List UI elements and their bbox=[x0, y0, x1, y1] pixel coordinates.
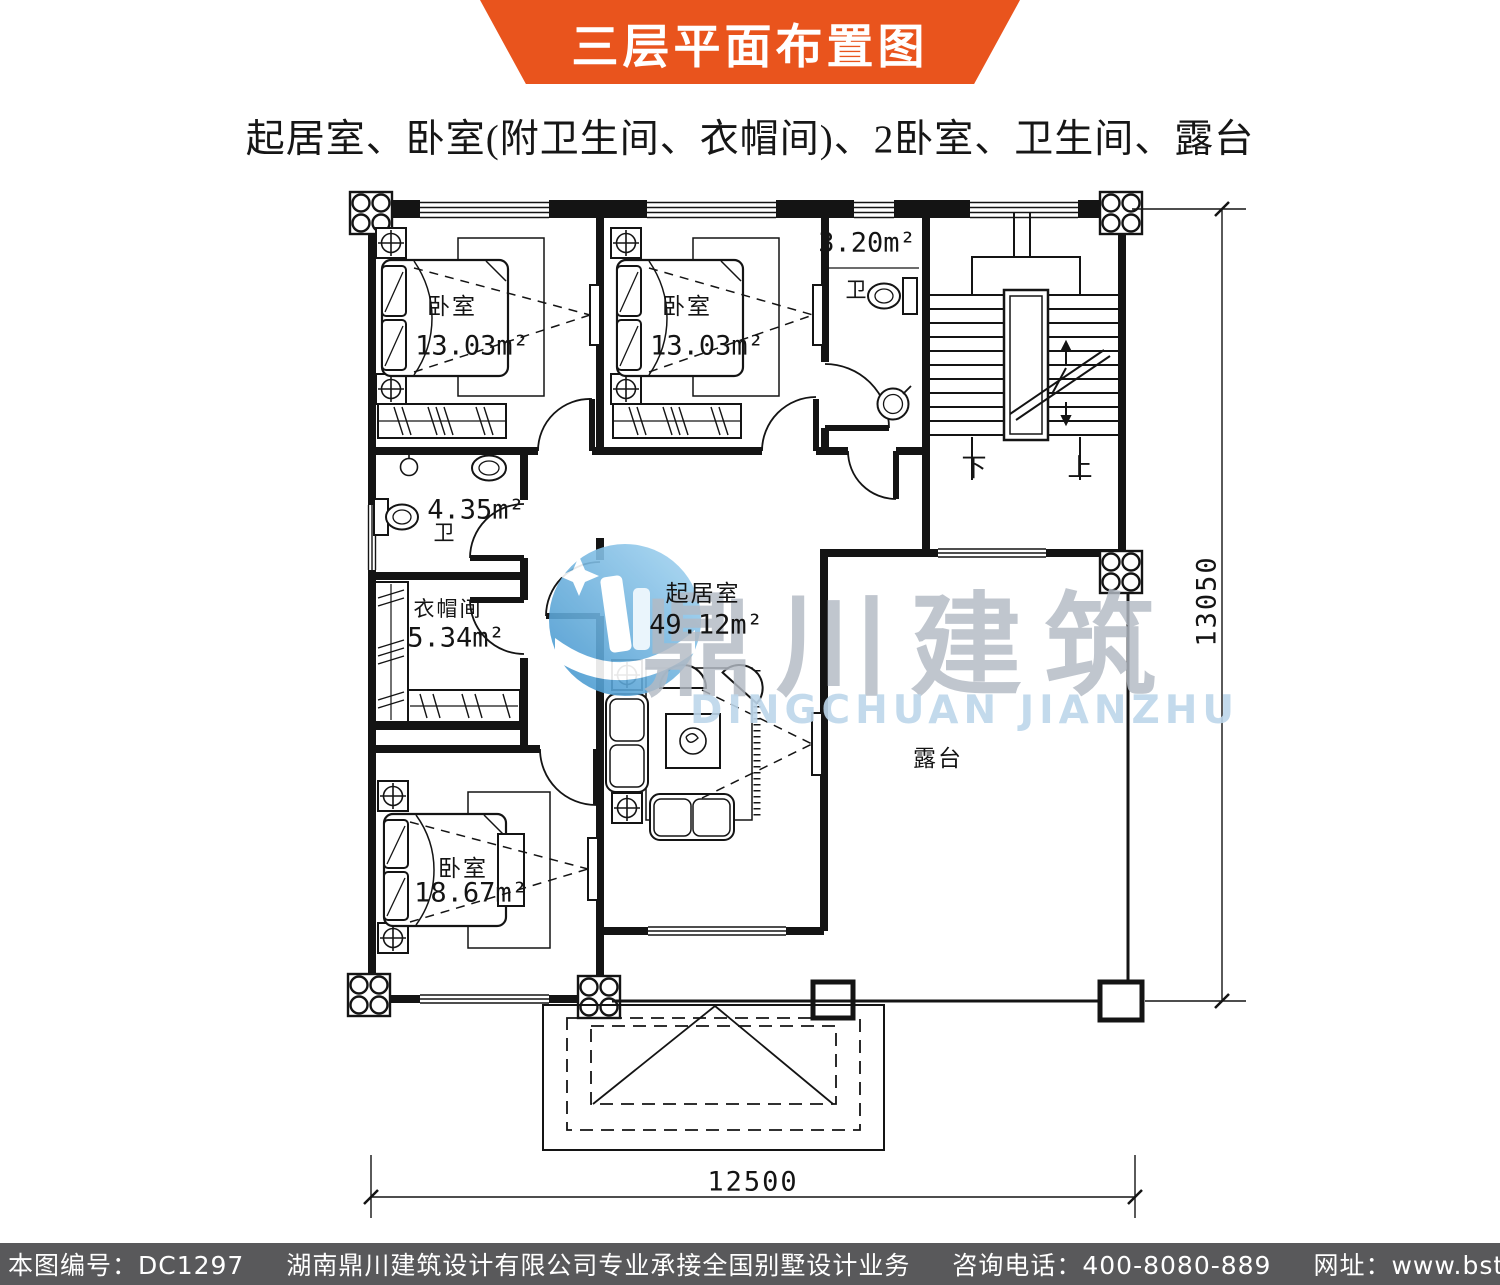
staircase bbox=[930, 213, 1122, 480]
footer-phone: 咨询电话：400-8080-889 bbox=[952, 1246, 1271, 1282]
room-label-bedroom2-name: 卧室 bbox=[662, 287, 712, 321]
room-label-terrace: 露台 bbox=[913, 739, 963, 773]
room-label-bedroom1-name: 卧室 bbox=[427, 287, 477, 321]
room-list-subtitle: 起居室、卧室(附卫生间、衣帽间)、2卧室、卫生间、露台 bbox=[0, 108, 1500, 164]
page-title: 三层平面布置图 bbox=[572, 8, 929, 77]
title-banner: 三层平面布置图 bbox=[480, 0, 1020, 84]
room-label-bedroom3-area: 18.67m² bbox=[414, 878, 528, 909]
footer-company: 湖南鼎川建筑设计有限公司专业承接全国别墅设计业务 bbox=[286, 1246, 910, 1282]
floor-plan-drawing bbox=[0, 0, 1500, 1285]
footer-website: 网址：www.bstzcs.com bbox=[1313, 1246, 1500, 1282]
room-label-bath-left-name: 卫 bbox=[434, 517, 455, 547]
room-label-bedroom1-area: 13.03m² bbox=[415, 331, 529, 362]
bedroom3-furniture bbox=[384, 792, 598, 948]
footer-bar: 本图编号：DC1297 湖南鼎川建筑设计有限公司专业承接全国别墅设计业务 咨询电… bbox=[0, 1243, 1500, 1285]
footer-drawing-number: 本图编号：DC1297 bbox=[8, 1246, 244, 1282]
stairs-up-label: 上 bbox=[1067, 448, 1092, 484]
room-label-bath-top-area: 3.20m² bbox=[818, 228, 916, 259]
stairs-down-label: 下 bbox=[961, 448, 986, 484]
porch-roof bbox=[543, 1005, 884, 1150]
room-label-living-name: 起居室 bbox=[666, 574, 741, 608]
room-label-bedroom2-area: 13.03m² bbox=[650, 331, 764, 362]
room-label-living-area: 49.12m² bbox=[649, 610, 763, 641]
floor-plan-page: 鼎川建筑 DINGCHUAN JIANZHU 三层平面布置图 起居室、卧室(附卫… bbox=[0, 0, 1500, 1285]
dimension-height-label: 13050 bbox=[1192, 555, 1223, 646]
room-label-cloakroom-area: 5.34m² bbox=[407, 623, 505, 654]
room-label-bath-top-name: 卫 bbox=[846, 274, 867, 304]
room-label-cloakroom-name: 衣帽间 bbox=[414, 593, 483, 623]
dimension-width-label: 12500 bbox=[707, 1167, 798, 1198]
bathroom-top-fixtures bbox=[825, 268, 919, 420]
